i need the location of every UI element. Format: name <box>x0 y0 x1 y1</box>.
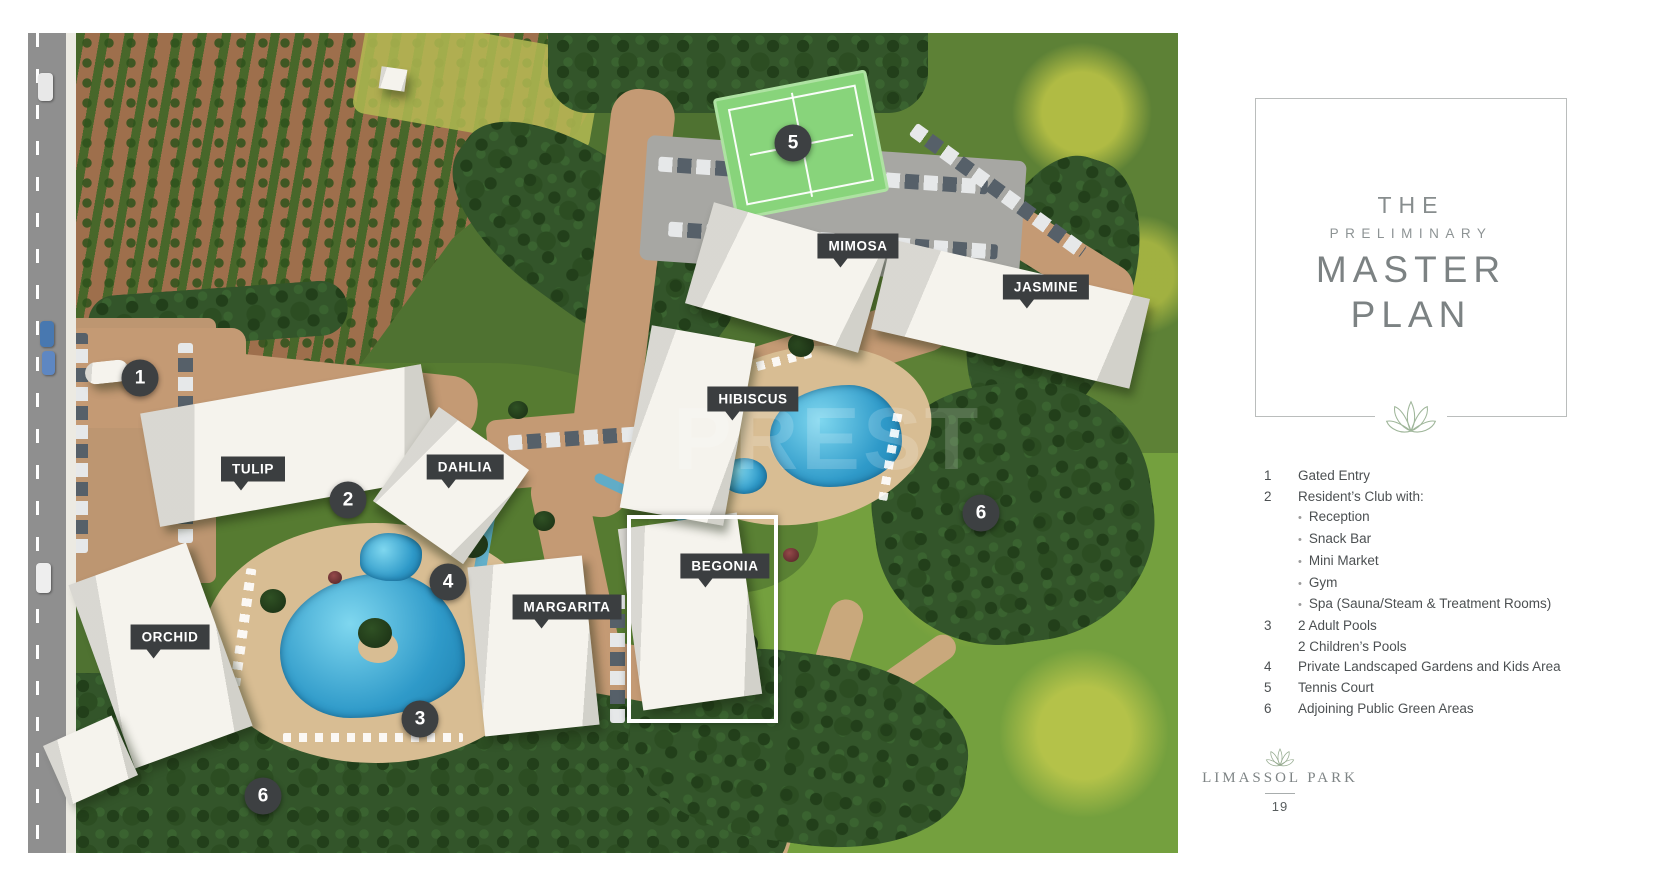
title-box: THE PRELIMINARY MASTER PLAN <box>1255 98 1567 417</box>
sidewalk <box>66 33 76 853</box>
bullet-icon: • <box>1298 534 1302 546</box>
road-centerline <box>36 33 39 853</box>
legend-row: 32 Adult Pools <box>1264 616 1634 637</box>
legend-number <box>1264 507 1298 529</box>
legend-text: •Spa (Sauna/Steam & Treatment Rooms) <box>1298 594 1551 616</box>
legend-text: Tennis Court <box>1298 678 1374 699</box>
legend-number: 3 <box>1264 616 1298 637</box>
legend-text: Gated Entry <box>1298 466 1370 487</box>
legend-number <box>1264 573 1298 595</box>
legend-row: 5Tennis Court <box>1264 678 1634 699</box>
car-on-road <box>36 563 51 593</box>
master-plan-map: PREST TULIPDAHLIAORCHIDMARGARITABEGONIAH… <box>28 33 1178 853</box>
sun-loungers <box>283 733 463 742</box>
shed <box>379 66 408 91</box>
brand-lotus-icon <box>1180 748 1380 768</box>
legend-text: •Snack Bar <box>1298 529 1371 551</box>
title-line-preliminary: PRELIMINARY <box>1256 226 1566 241</box>
bullet-icon: • <box>1298 556 1302 568</box>
bullet-icon: • <box>1298 578 1302 590</box>
page-number: 19 <box>1180 799 1380 814</box>
building-label-margarita: MARGARITA <box>513 595 622 620</box>
legend-number: 2 <box>1264 487 1298 508</box>
page-footer: LIMASSOL PARK 19 <box>1180 748 1380 814</box>
footer-divider <box>1265 793 1295 794</box>
bullet-icon: • <box>1298 599 1302 611</box>
legend-row: 6Adjoining Public Green Areas <box>1264 699 1634 720</box>
legend-row: •Reception <box>1264 507 1634 529</box>
map-marker-3: 3 <box>402 701 439 738</box>
map-marker-5: 5 <box>775 125 812 162</box>
bullet-icon: • <box>1298 512 1302 524</box>
building-label-begonia: BEGONIA <box>680 554 769 579</box>
building-label-hibiscus: HIBISCUS <box>707 387 798 412</box>
legend-number: 4 <box>1264 657 1298 678</box>
begonia-highlight-box <box>627 515 778 723</box>
title-line-master: MASTER <box>1256 249 1566 291</box>
flower-bush <box>328 571 342 584</box>
legend-row: 4Private Landscaped Gardens and Kids Are… <box>1264 657 1634 678</box>
building-label-tulip: TULIP <box>221 457 285 482</box>
legend-row: 2 Children’s Pools <box>1264 637 1634 658</box>
legend-text: •Mini Market <box>1298 551 1379 573</box>
legend-row: 1Gated Entry <box>1264 466 1634 487</box>
legend-row: •Mini Market <box>1264 551 1634 573</box>
legend-list: 1Gated Entry2Resident’s Club with:•Recep… <box>1264 466 1634 719</box>
car-on-road <box>40 321 54 347</box>
legend-text: •Reception <box>1298 507 1370 529</box>
legend-row: •Gym <box>1264 573 1634 595</box>
legend-text: Resident’s Club with: <box>1298 487 1424 508</box>
legend-text: 2 Children’s Pools <box>1298 637 1407 658</box>
legend-text: Private Landscaped Gardens and Kids Area <box>1298 657 1561 678</box>
legend-text: Adjoining Public Green Areas <box>1298 699 1474 720</box>
legend-text: •Gym <box>1298 573 1337 595</box>
map-marker-1: 1 <box>122 360 159 397</box>
legend-number <box>1264 594 1298 616</box>
legend-number: 1 <box>1264 466 1298 487</box>
kids-pool-west <box>360 533 422 581</box>
legend-row: •Snack Bar <box>1264 529 1634 551</box>
legend-number <box>1264 551 1298 573</box>
legend-number <box>1264 637 1298 658</box>
lotus-icon <box>1375 398 1447 438</box>
building-label-jasmine: JASMINE <box>1003 275 1089 300</box>
bush <box>260 589 286 613</box>
brand-name: LIMASSOL PARK <box>1180 770 1380 787</box>
bush <box>508 401 528 419</box>
map-marker-2: 2 <box>330 482 367 519</box>
legend-number: 6 <box>1264 699 1298 720</box>
legend-row: •Spa (Sauna/Steam & Treatment Rooms) <box>1264 594 1634 616</box>
title-line-plan: PLAN <box>1256 294 1566 336</box>
legend-text: 2 Adult Pools <box>1298 616 1377 637</box>
flower-bush <box>783 548 799 562</box>
car-on-road <box>38 73 53 101</box>
legend-row: 2Resident’s Club with: <box>1264 487 1634 508</box>
public-road <box>28 33 66 853</box>
palm-tree <box>358 618 392 648</box>
building-label-orchid: ORCHID <box>131 625 210 650</box>
bush <box>533 511 555 531</box>
car-on-road <box>42 351 55 375</box>
building-label-dahlia: DAHLIA <box>427 455 504 480</box>
building-label-mimosa: MIMOSA <box>817 234 898 259</box>
building-margarita <box>467 555 599 736</box>
map-marker-6b: 6 <box>245 778 282 815</box>
legend-number <box>1264 529 1298 551</box>
map-marker-4: 4 <box>430 564 467 601</box>
legend-number: 5 <box>1264 678 1298 699</box>
title-line-the: THE <box>1256 192 1566 219</box>
map-marker-6a: 6 <box>963 495 1000 532</box>
